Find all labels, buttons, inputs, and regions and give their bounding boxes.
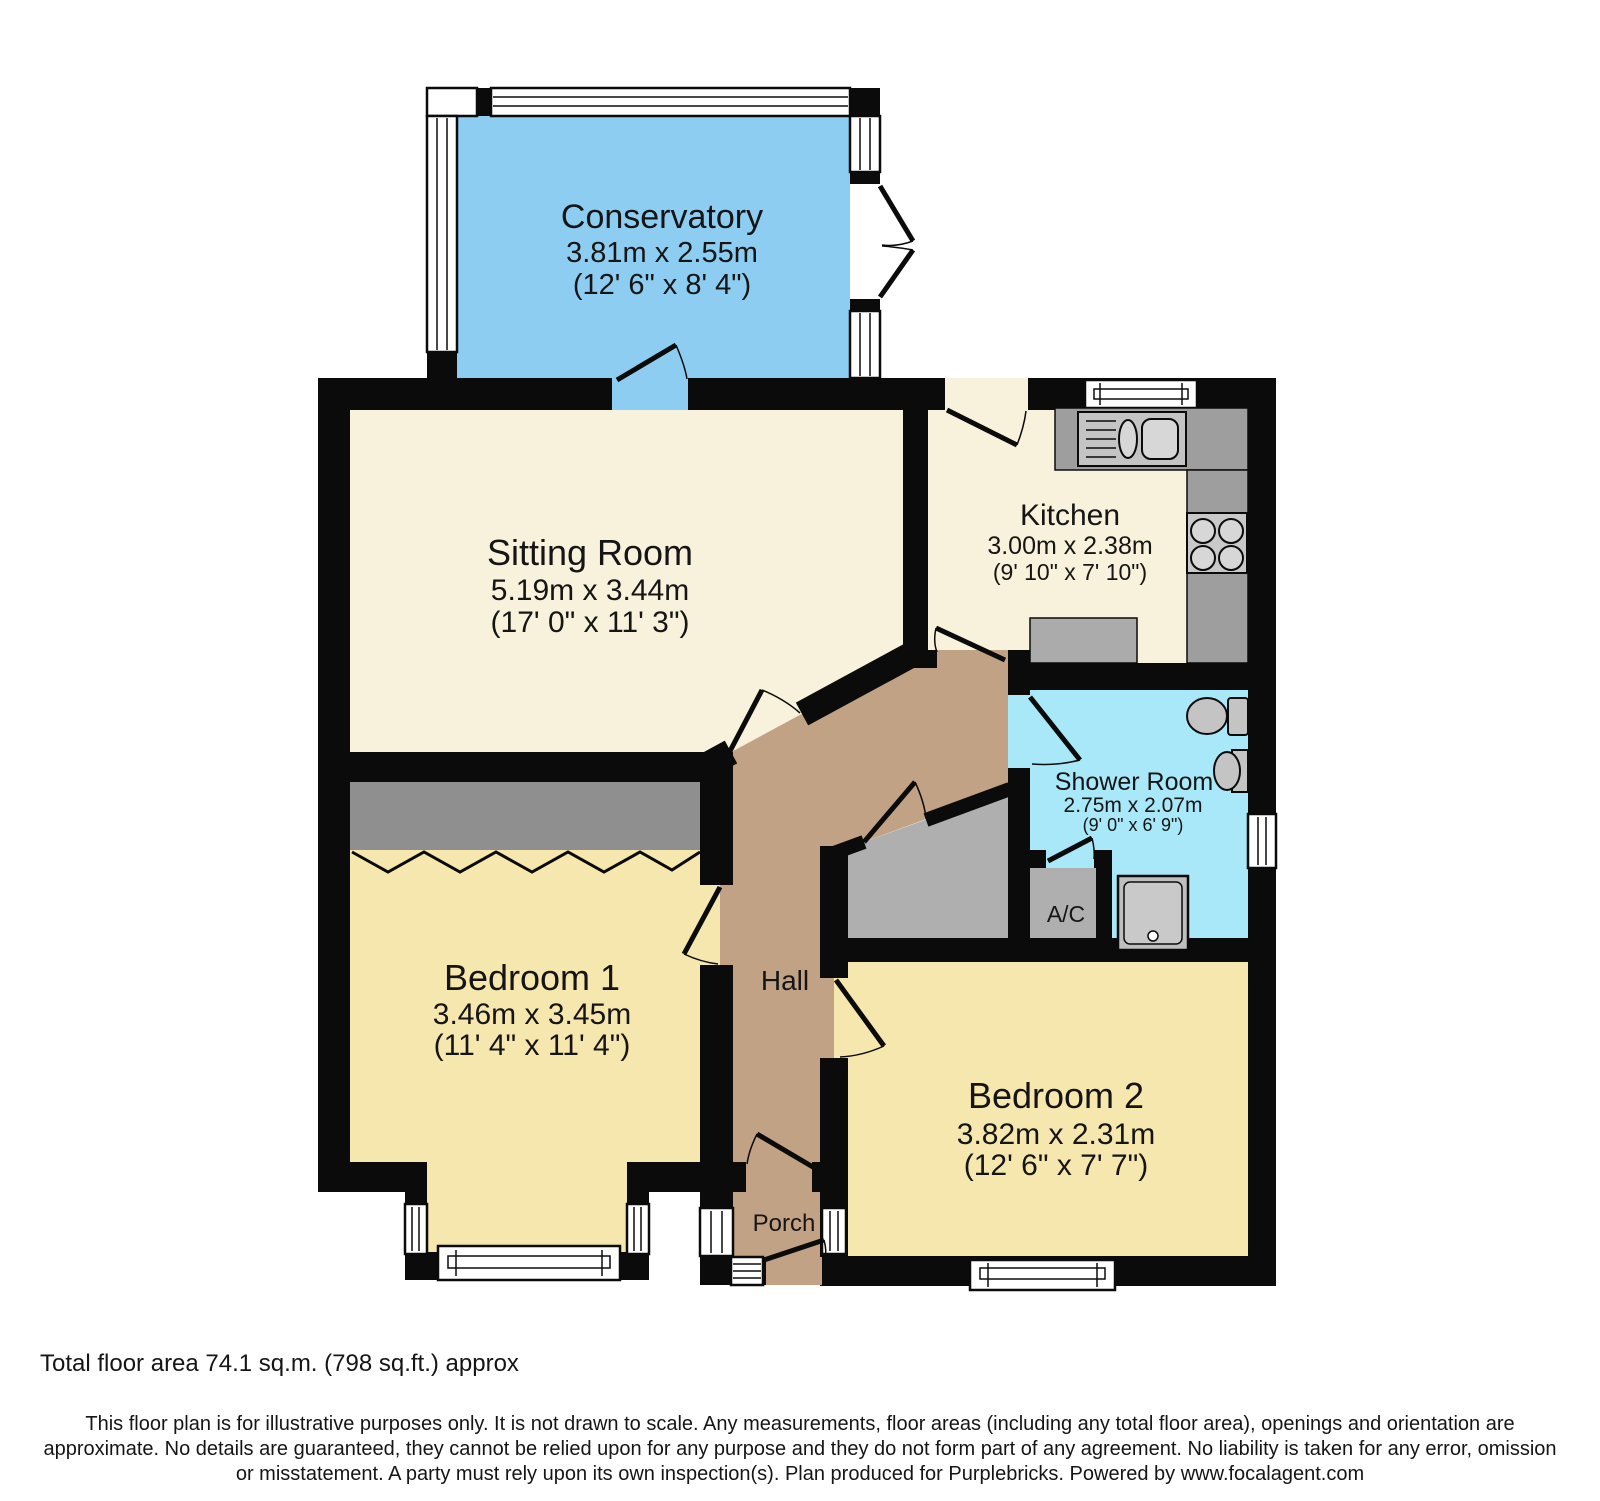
wardrobe-block (350, 782, 700, 850)
window-frame (627, 1204, 649, 1254)
french-door-leaf-bottom (880, 250, 913, 297)
bedroom2-window (970, 1260, 1115, 1290)
conservatory-window-top (491, 88, 850, 116)
window-frame (405, 1204, 427, 1254)
gap-bedroom2-door-a (820, 978, 834, 1058)
toilet-cistern (1228, 698, 1248, 735)
hall-label: Hall (761, 965, 809, 996)
wall-ac-right (1096, 868, 1112, 958)
shower-tray (1118, 876, 1188, 950)
conservatory-jamb-upper (850, 172, 880, 184)
bedroom2-metric: 3.82m x 2.31m (957, 1118, 1155, 1151)
conservatory-post-top-left (477, 88, 491, 116)
porch-front-sidelight (731, 1257, 763, 1285)
porch-window-left (700, 1208, 733, 1256)
sink-unit (1078, 412, 1186, 466)
kitchen-imperial: (9' 10" x 7' 10") (993, 559, 1147, 585)
wall-bedroom1-bottom-left (318, 1162, 427, 1192)
gap-front-door (766, 1257, 822, 1285)
conservatory-jamb-lower (850, 299, 880, 311)
sitting-room-metric: 5.19m x 3.44m (491, 574, 689, 607)
toilet-bowl (1187, 698, 1227, 734)
sink-small-bowl (1119, 420, 1137, 458)
wall-bedroom1-bottom-right (627, 1162, 733, 1192)
toilet (1187, 698, 1248, 735)
counter-bottom (1030, 618, 1137, 663)
conservatory-post-top-right (850, 88, 880, 116)
bay-window-right (627, 1204, 649, 1254)
hob-ring (1219, 546, 1243, 570)
shower-drain (1148, 931, 1158, 941)
sitting-room-label: Sitting Room (487, 532, 693, 573)
bedroom2-imperial: (12' 6" x 7' 7") (964, 1149, 1149, 1182)
wall-kitchen-shower (1008, 663, 1248, 690)
porch-label: Porch (753, 1210, 816, 1237)
bay-window-front (438, 1246, 620, 1280)
conservatory-window-left (427, 116, 457, 352)
gap-conservatory-door (612, 378, 688, 410)
shower-room-metric: 2.75m x 2.07m (1064, 794, 1203, 817)
bedroom1-metric: 3.46m x 3.45m (433, 998, 631, 1031)
kitchen-label: Kitchen (1020, 499, 1120, 532)
wall-sitting-bedroom1 (318, 752, 708, 782)
gap-kitchen-back-door (945, 378, 1028, 410)
hob (1187, 513, 1247, 573)
total-floor-area: Total floor area 74.1 sq.m. (798 sq.ft.)… (40, 1350, 519, 1377)
gap-hall-porch-door (746, 1162, 812, 1192)
basin (1214, 750, 1248, 792)
shower-room-imperial: (9' 0" x 6' 9") (1083, 815, 1184, 835)
wall-left (318, 378, 350, 1192)
french-door-leaf-top (880, 186, 913, 241)
hob-ring (1191, 519, 1215, 543)
wall-bedroom1-hall (700, 752, 733, 1192)
conservatory-metric: 3.81m x 2.55m (566, 237, 758, 269)
ac-label: A/C (1047, 901, 1085, 927)
window-frame (1248, 814, 1276, 868)
window-frame (970, 1260, 1115, 1290)
sink-bowl (1142, 419, 1178, 459)
shower-window (1248, 814, 1276, 868)
conservatory-post-bottom-left (427, 352, 457, 380)
bedroom1-imperial: (11' 4" x 11' 4") (434, 1029, 631, 1062)
kitchen-window (1085, 380, 1197, 408)
hob-ring (1191, 546, 1215, 570)
disclaimer-line-2: approximate. No details are guaranteed, … (43, 1438, 1556, 1460)
bay-window-left (405, 1204, 427, 1254)
hob-ring (1219, 519, 1243, 543)
wall-sitting-kitchen (903, 408, 928, 655)
french-door-arc-bottom (882, 246, 913, 250)
window-frame (700, 1208, 733, 1256)
conservatory-label: Conservatory (561, 198, 763, 236)
kitchen-metric: 3.00m x 2.38m (987, 532, 1152, 560)
conservatory-imperial: (12' 6" x 8' 4") (573, 269, 751, 301)
sitting-room-imperial: (17' 0" x 11' 3") (491, 606, 690, 639)
conservatory-window-right-top (850, 116, 880, 172)
bedroom1-label: Bedroom 1 (444, 957, 620, 998)
floor-plan-page: Conservatory 3.81m x 2.55m (12' 6" x 8' … (0, 0, 1600, 1501)
disclaimer-line-1: This floor plan is for illustrative purp… (85, 1413, 1514, 1435)
french-door-arc-top (882, 241, 913, 246)
gap-shower-door (1008, 695, 1030, 768)
window-frame (1085, 380, 1197, 408)
floor-plan-drawing: Conservatory 3.81m x 2.55m (12' 6" x 8' … (0, 0, 1600, 1501)
bedroom1-bay-floor (427, 1162, 627, 1252)
conservatory-window-right-bottom (850, 311, 880, 378)
window-frame (438, 1246, 620, 1280)
disclaimer-line-3: or misstatement. A party must rely upon … (236, 1463, 1364, 1485)
basin-bowl (1214, 752, 1240, 790)
conservatory-corner-box (427, 88, 477, 116)
gap-bedroom1-door-b (720, 885, 733, 965)
shower-room-label: Shower Room (1055, 768, 1213, 796)
bedroom2-label: Bedroom 2 (968, 1075, 1144, 1116)
footer-text: Total floor area 74.1 sq.m. (798 sq.ft.)… (40, 1350, 1557, 1485)
